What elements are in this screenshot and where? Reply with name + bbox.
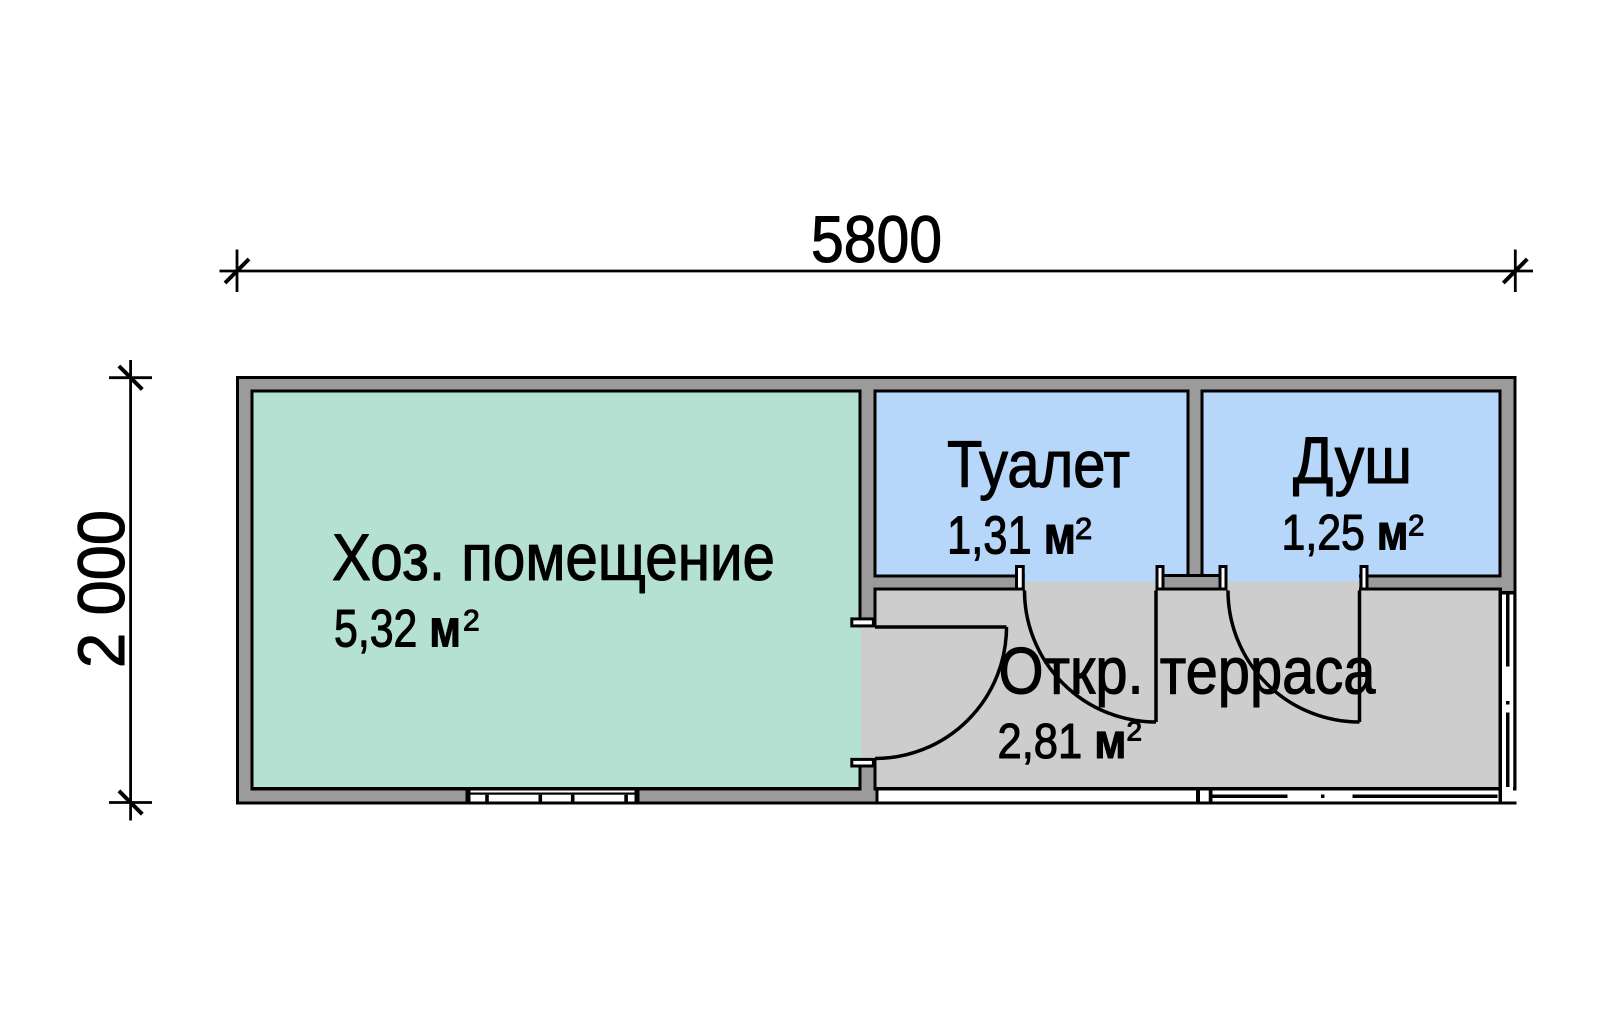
svg-text:Откр. терраса: Откр. терраса xyxy=(999,633,1376,707)
svg-text:2 000: 2 000 xyxy=(64,510,138,668)
svg-text:2: 2 xyxy=(463,605,480,638)
svg-text:2: 2 xyxy=(1075,511,1092,546)
svg-text:2,81 м: 2,81 м xyxy=(998,714,1127,769)
svg-text:2: 2 xyxy=(1127,716,1143,747)
svg-text:5800: 5800 xyxy=(811,202,942,276)
svg-text:2: 2 xyxy=(1408,510,1424,543)
svg-text:Туалет: Туалет xyxy=(947,427,1130,501)
svg-text:1,25 м: 1,25 м xyxy=(1282,504,1409,561)
svg-text:1,31 м: 1,31 м xyxy=(947,506,1076,566)
svg-text:Хоз. помещение: Хоз. помещение xyxy=(332,520,775,594)
svg-text:5,32 м: 5,32 м xyxy=(334,600,461,659)
svg-text:Душ: Душ xyxy=(1293,423,1412,497)
